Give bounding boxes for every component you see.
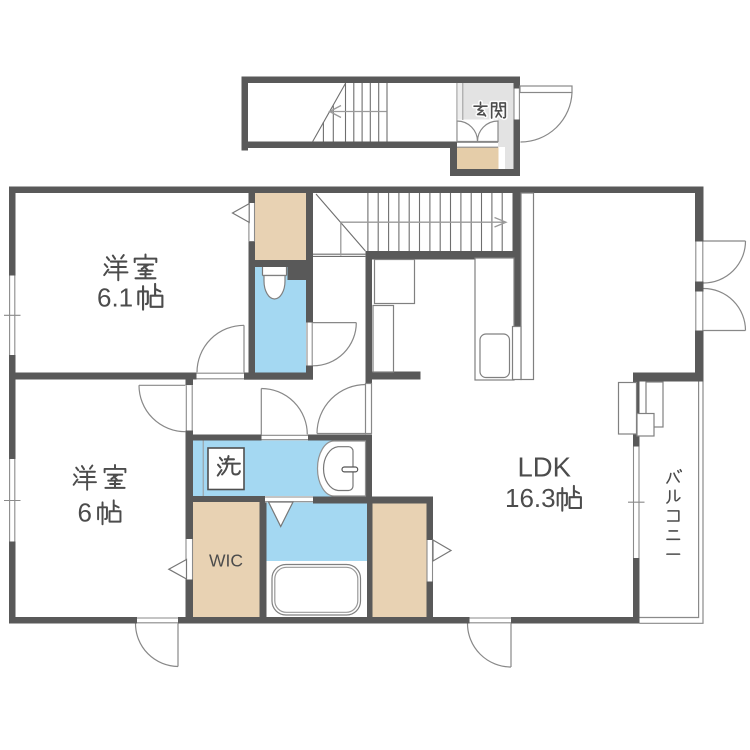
svg-text:LDK: LDK (518, 452, 572, 483)
svg-text:6.1: 6.1 (97, 283, 133, 313)
svg-text:16.3: 16.3 (505, 483, 556, 513)
svg-text:6: 6 (78, 498, 92, 528)
svg-text:WIC: WIC (209, 551, 243, 571)
